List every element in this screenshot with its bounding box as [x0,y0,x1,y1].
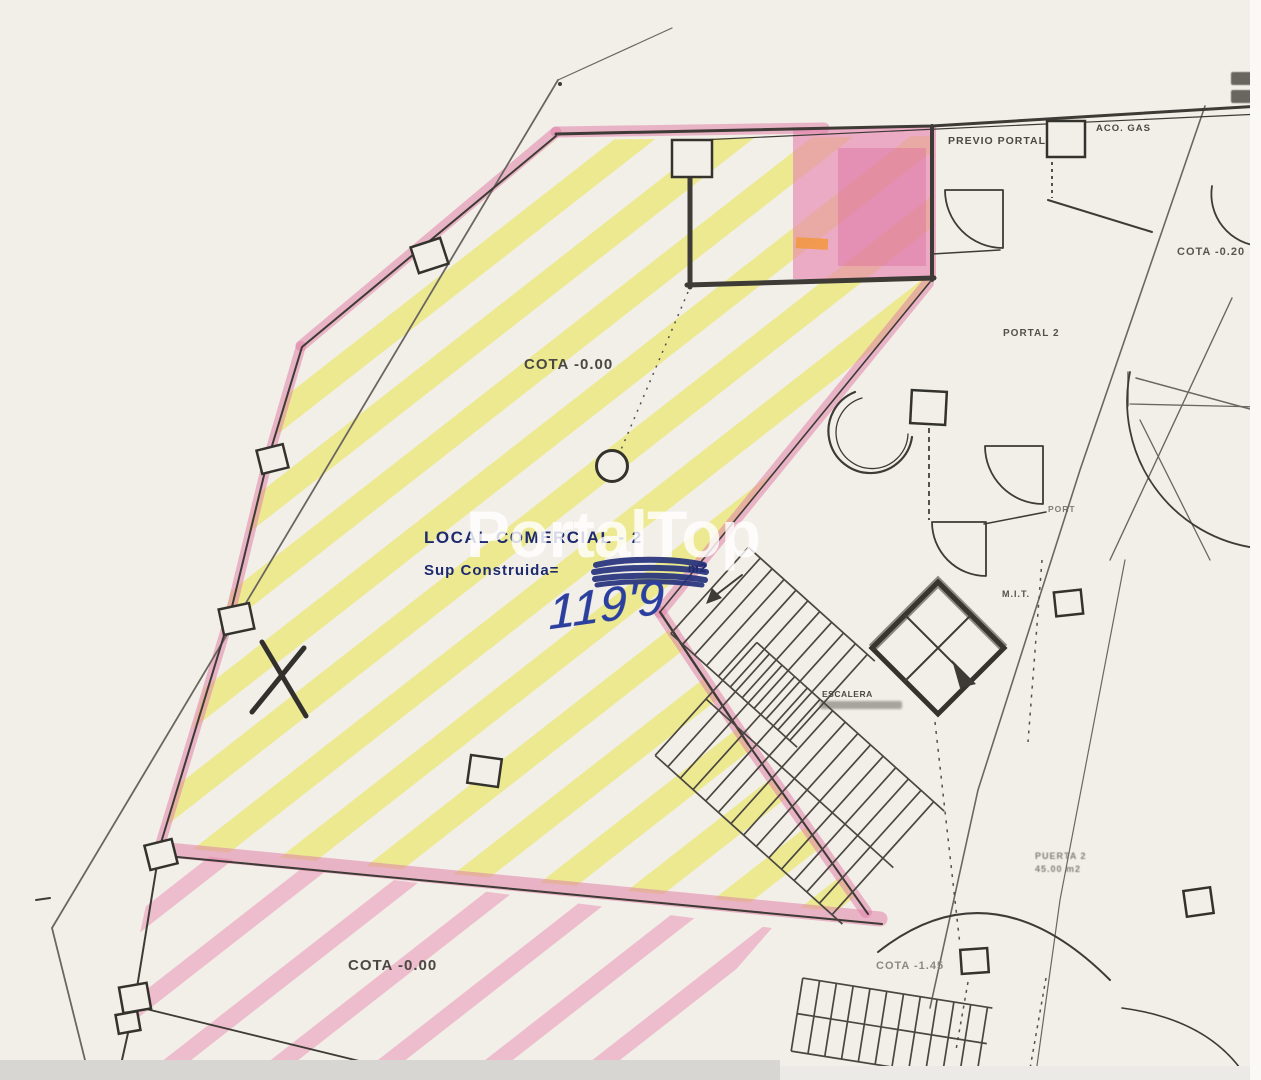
cota-label-right: COTA -0.20 [1177,246,1245,258]
gas-meter-label: ACO. GAS [1096,123,1151,134]
pink-highlight-block-core [838,148,926,266]
cota-label-lower: COTA -0.00 [348,957,437,974]
rit-room-label: M.I.T. [1002,589,1030,599]
column-marker [256,444,288,474]
column-marker [1054,590,1083,617]
column-marker [672,140,712,177]
column-marker [960,948,989,974]
cota-label-entry: COTA -1.45 [876,960,944,972]
column-marker [119,983,151,1013]
orange-smear [796,237,829,250]
round-column-marker [597,451,628,482]
watermark-text: PortalTop [466,496,760,572]
column-marker [219,603,255,635]
column-marker [1183,887,1213,917]
column-marker [1047,121,1085,157]
portal-2-label: PORTAL 2 [1003,328,1060,339]
scanned-floor-plan: COTA -0.00 COTA -0.00 COTA -0.20 COTA -1… [0,0,1261,1080]
column-marker [910,390,947,425]
door-note-line1: PUERTA 2 [1035,851,1087,861]
port-note-label: PORT [1048,504,1076,514]
column-marker [116,1011,141,1034]
column-marker [467,755,502,787]
column-marker [144,839,177,870]
door-note-line2: 45.00 m2 [1035,864,1081,874]
cota-label-main: COTA -0.00 [524,356,613,373]
stair-label: ESCALERA [822,689,873,699]
previo-portal-label: PREVIO PORTAL [948,135,1046,147]
